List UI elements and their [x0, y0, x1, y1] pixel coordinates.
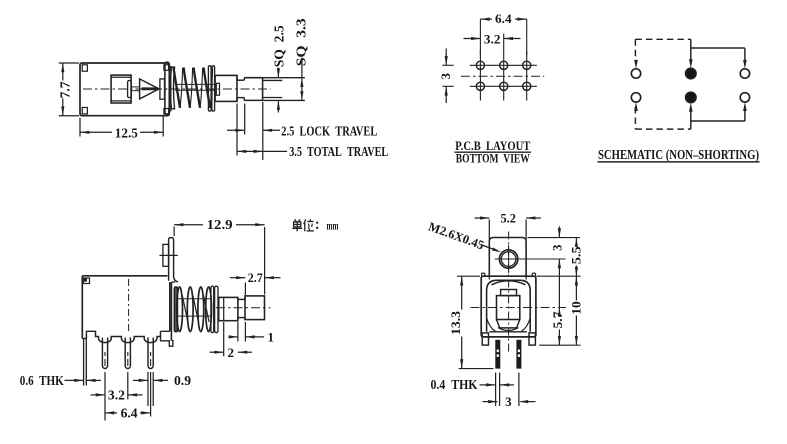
svg-text:5.2: 5.2	[500, 211, 516, 226]
svg-text:3.2: 3.2	[484, 31, 501, 46]
svg-text:6.4: 6.4	[121, 405, 138, 420]
svg-text:10: 10	[569, 301, 583, 315]
svg-text:2: 2	[228, 345, 235, 360]
svg-text:mm: mm	[327, 220, 339, 232]
svg-text:BOTTOM VIEW: BOTTOM VIEW	[456, 151, 530, 165]
svg-text:SCHEMATIC (NON–SHORTING): SCHEMATIC (NON–SHORTING)	[598, 148, 759, 163]
svg-text:5.7: 5.7	[551, 312, 565, 329]
svg-text:2.7: 2.7	[248, 271, 263, 285]
svg-text:7.7: 7.7	[57, 81, 72, 98]
svg-text:13.3: 13.3	[449, 311, 463, 335]
svg-text:12.9: 12.9	[207, 218, 233, 233]
svg-text:5.5: 5.5	[569, 246, 583, 264]
svg-text:SQ 2.5: SQ 2.5	[273, 25, 288, 67]
svg-text:0.4 THK: 0.4 THK	[431, 377, 478, 392]
svg-text:SQ 3.3: SQ 3.3	[294, 18, 309, 66]
svg-text:0.6 THK: 0.6 THK	[20, 373, 64, 388]
svg-text:6.4: 6.4	[495, 11, 512, 26]
svg-text:3: 3	[551, 245, 565, 251]
svg-text:3.2: 3.2	[108, 387, 125, 402]
svg-text:3.5 TOTAL TRAVEL: 3.5 TOTAL TRAVEL	[289, 145, 388, 160]
svg-text:1: 1	[268, 330, 275, 345]
svg-text:0.9: 0.9	[174, 373, 191, 388]
svg-text:3: 3	[505, 394, 512, 409]
svg-text:3: 3	[439, 73, 453, 79]
svg-text:12.5: 12.5	[115, 126, 138, 141]
svg-text:2.5 LOCK TRAVEL: 2.5 LOCK TRAVEL	[281, 125, 377, 140]
